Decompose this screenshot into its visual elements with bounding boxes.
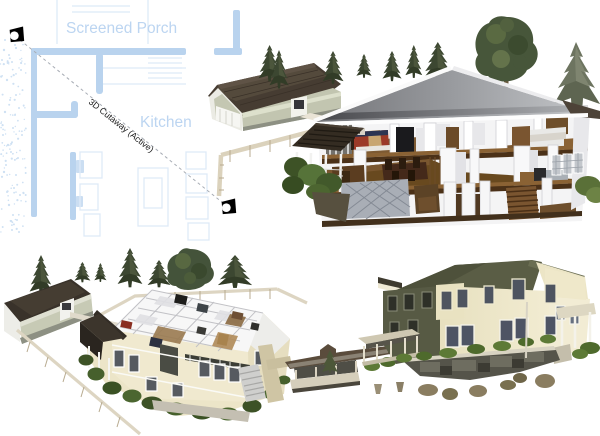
svg-text:Kitchen: Kitchen <box>140 114 192 131</box>
svg-text:Screened Porch: Screened Porch <box>66 20 177 37</box>
